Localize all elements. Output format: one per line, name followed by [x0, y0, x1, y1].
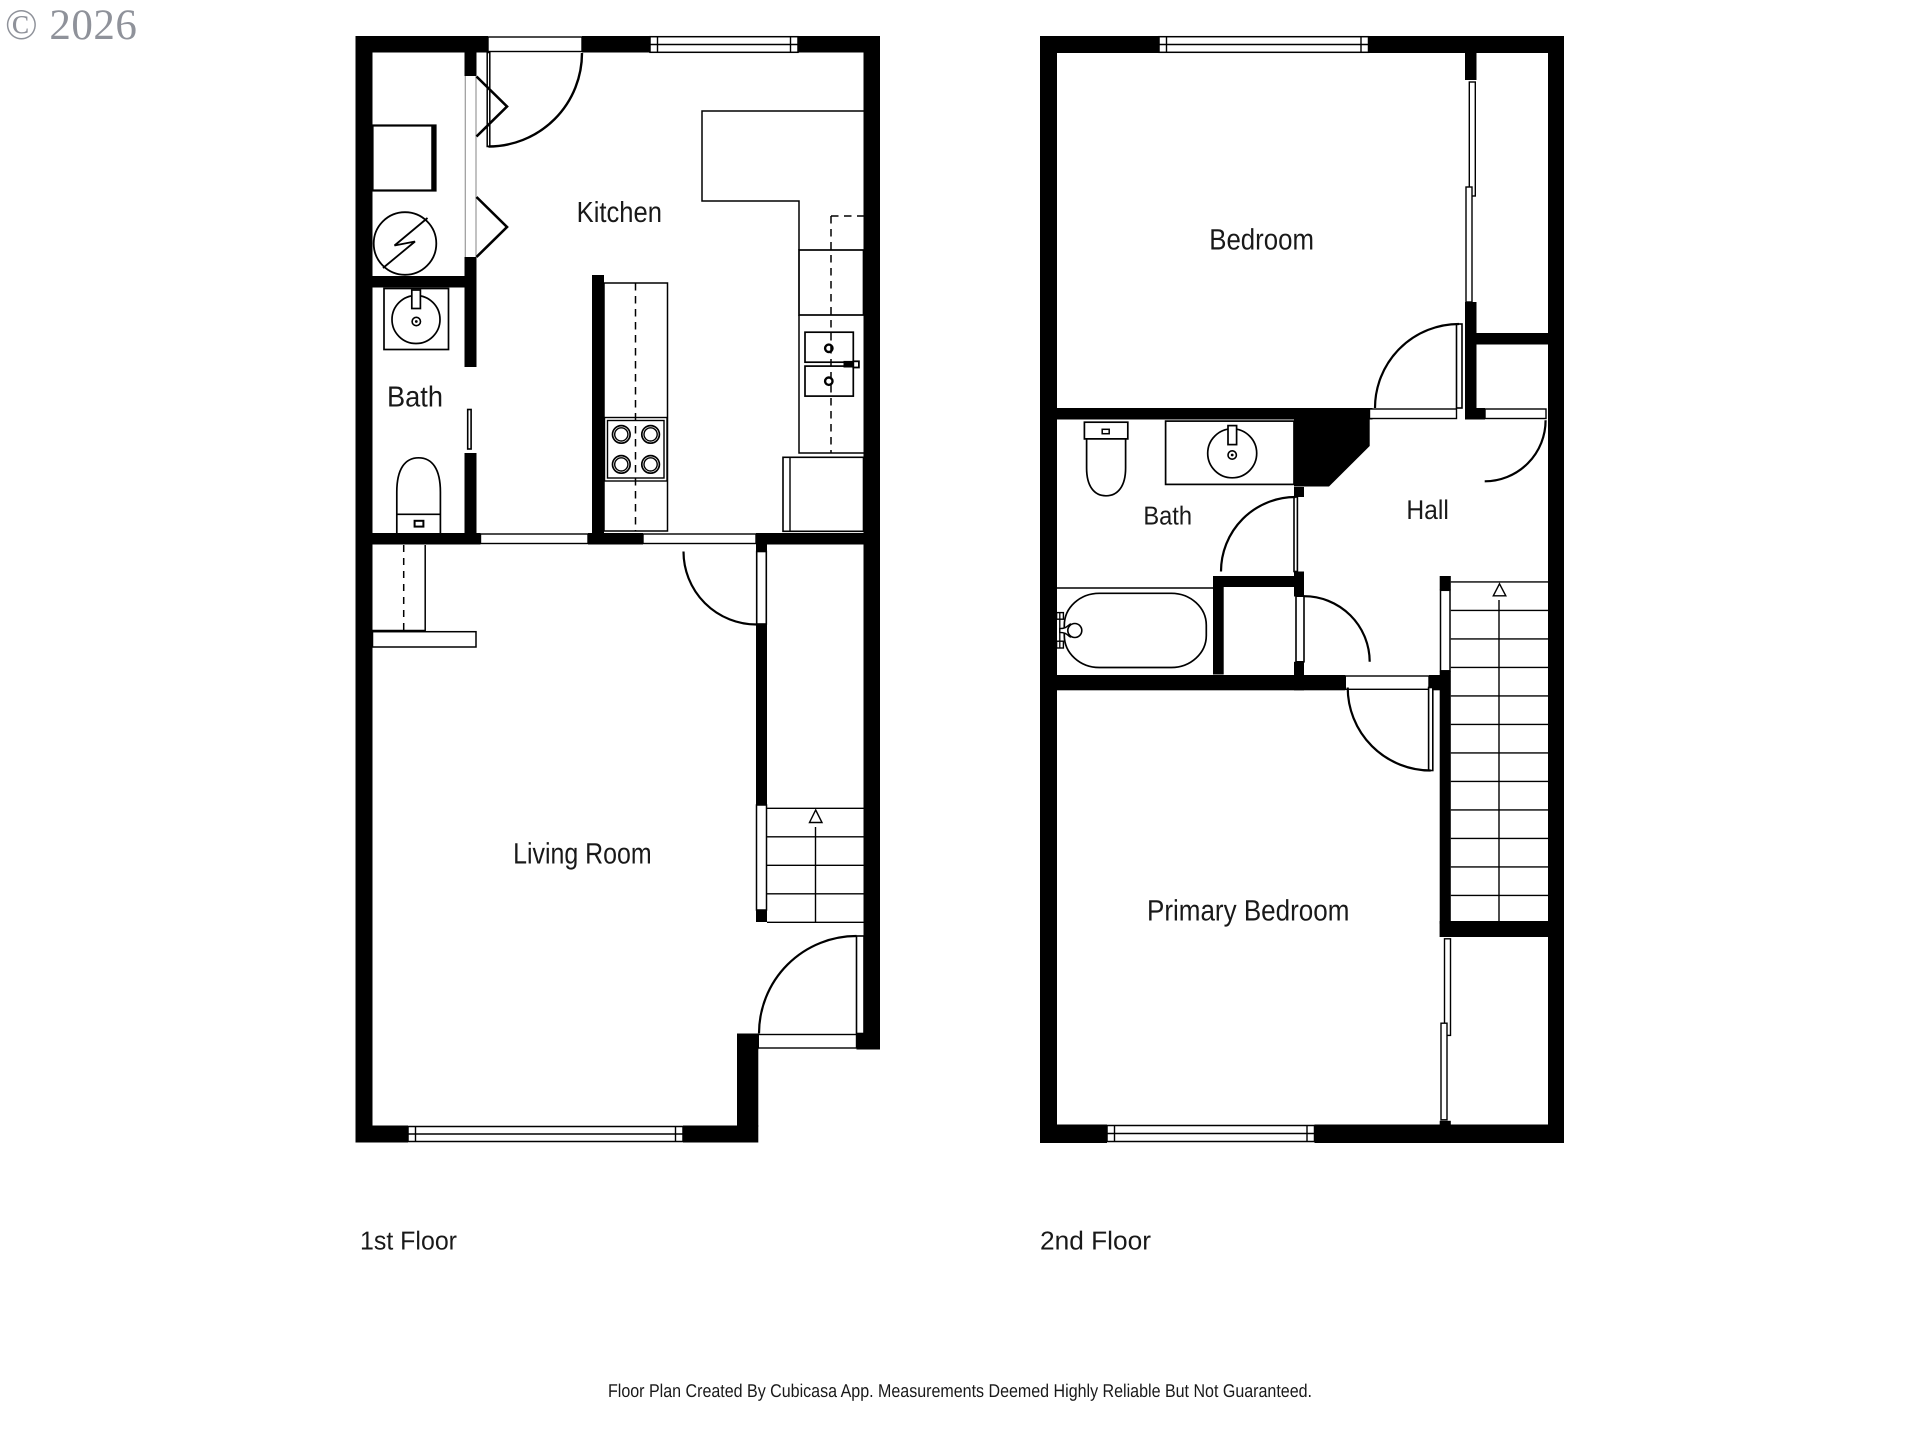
svg-text:Bath: Bath: [1143, 501, 1192, 531]
svg-text:Living Room: Living Room: [513, 838, 652, 871]
svg-text:Kitchen: Kitchen: [577, 197, 662, 229]
svg-text:Hall: Hall: [1406, 495, 1449, 525]
svg-text:2nd Floor: 2nd Floor: [1040, 1226, 1151, 1256]
svg-text:© 2026: © 2026: [5, 2, 137, 49]
svg-text:Bedroom: Bedroom: [1209, 224, 1314, 257]
svg-text:1st Floor: 1st Floor: [360, 1226, 457, 1256]
svg-text:Bath: Bath: [387, 382, 443, 414]
svg-text:Primary Bedroom: Primary Bedroom: [1147, 895, 1349, 928]
svg-text:Floor Plan Created By Cubicasa: Floor Plan Created By Cubicasa App. Meas…: [608, 1380, 1312, 1401]
